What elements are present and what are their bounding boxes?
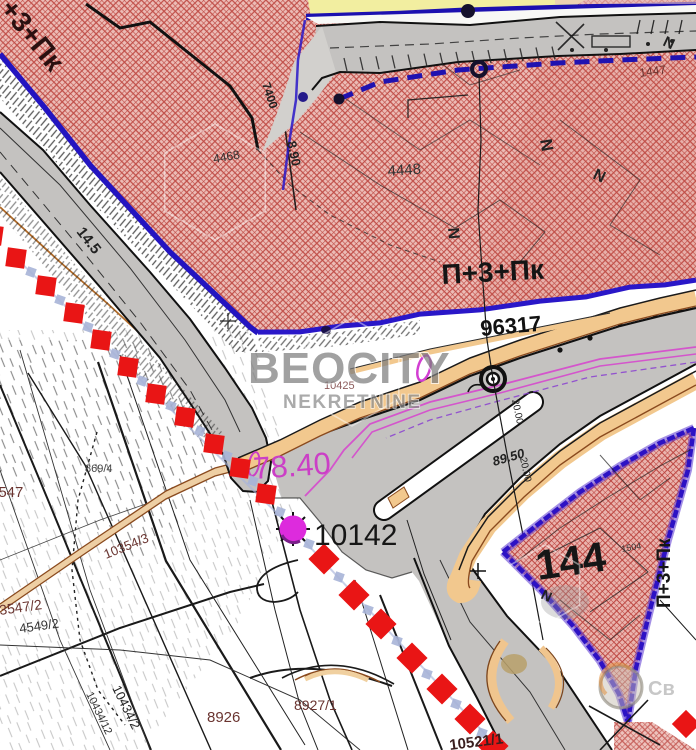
svg-text:П+3+Пк: П+3+Пк bbox=[441, 254, 546, 290]
svg-text:N: N bbox=[444, 227, 462, 240]
svg-text:10142: 10142 bbox=[314, 519, 397, 552]
svg-text:П+3+Пк: П+3+Пк bbox=[654, 538, 675, 608]
svg-text:4448: 4448 bbox=[387, 161, 421, 180]
svg-text:78.40: 78.40 bbox=[252, 446, 332, 486]
svg-text:8927/1: 8927/1 bbox=[294, 697, 337, 713]
svg-text:96317: 96317 bbox=[479, 311, 542, 341]
svg-text:4547: 4547 bbox=[0, 484, 23, 501]
svg-text:8926: 8926 bbox=[207, 709, 240, 726]
svg-text:BEOCITY: BEOCITY bbox=[248, 344, 451, 393]
svg-text:869/4: 869/4 bbox=[85, 463, 113, 475]
svg-text:Св: Св bbox=[648, 678, 675, 700]
svg-text:NEKRETNINE: NEKRETNINE bbox=[283, 392, 422, 413]
